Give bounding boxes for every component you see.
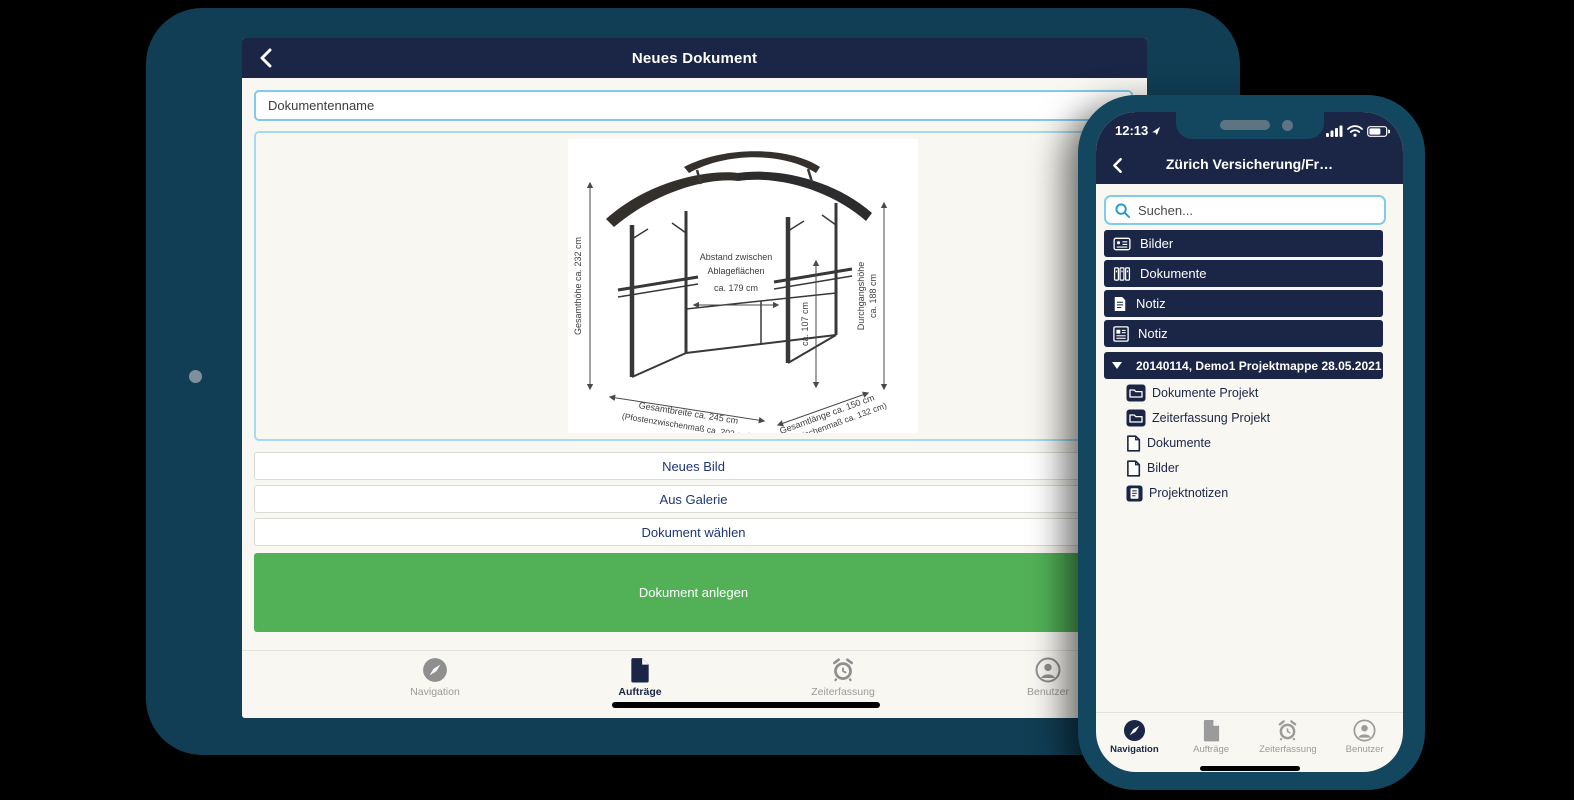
tree-item-dokumente[interactable]: Dokumente [1126,432,1211,454]
tree-item-dokumente-projekt[interactable]: Dokumente Projekt [1126,382,1258,404]
tab-auftraege[interactable]: Aufträge [1173,713,1250,772]
image-preview-panel[interactable]: Gesamthöhe ca. 232 cm Abstand zwischen A… [254,131,1133,441]
tab-navigation[interactable]: Navigation [1096,713,1173,772]
project-folder-row[interactable]: 20140114, Demo1 Projektmappe 28.05.2021 [1104,352,1383,379]
notepad-icon [1113,326,1129,342]
new-image-button[interactable]: Neues Bild [254,452,1133,480]
phone-tabbar: Navigation Aufträge Zeiterfassung Benutz… [1096,712,1403,772]
file-light-icon [1126,460,1141,477]
binders-icon [1113,267,1131,281]
create-document-button[interactable]: Dokument anlegen [254,553,1133,632]
chevron-left-icon [259,48,273,68]
images-button[interactable]: Bilder [1104,230,1383,257]
tablet-screen: Neues Dokument [242,38,1147,718]
note-dark-icon [1126,485,1143,502]
tree-item-projektnotizen[interactable]: Projektnotizen [1126,482,1228,504]
tab-benutzer[interactable]: Benutzer [1326,713,1403,772]
note-button[interactable]: Notiz [1104,290,1383,317]
notch [1176,112,1324,139]
tablet-tabbar: Navigation Aufträge Zeiterfassung Benutz… [242,650,1147,718]
file-light-icon [1126,435,1141,452]
note-button-2[interactable]: Notiz [1104,320,1383,347]
tab-zeiterfassung[interactable]: Zeiterfassung [778,656,908,698]
phone-device: 12:13 Zürich Versicherung/Fr… Suchen... … [1078,95,1425,790]
svg-text:Abstand zwischen: Abstand zwischen [700,252,773,262]
tab-auftraege[interactable]: Aufträge [575,656,705,698]
document-name-input[interactable] [254,90,1133,121]
tablet-device: Neues Dokument [146,8,1240,755]
documents-button[interactable]: Dokumente [1104,260,1383,287]
tab-navigation[interactable]: Navigation [370,656,500,698]
caret-down-icon[interactable] [1112,362,1122,369]
page-title: Zürich Versicherung/Fr… [1096,156,1403,172]
wifi-icon [1347,125,1363,137]
svg-text:ca. 107 cm: ca. 107 cm [800,302,810,346]
svg-text:Ablageflächen: Ablageflächen [707,266,764,276]
user-icon [1326,718,1403,742]
location-icon [1151,126,1161,136]
signal-icon [1326,125,1343,137]
document-icon [1173,718,1250,742]
status-time: 12:13 [1115,123,1161,138]
alarm-icon [778,656,908,684]
search-icon [1115,203,1130,218]
home-indicator[interactable] [1200,766,1300,771]
technical-drawing: Gesamthöhe ca. 232 cm Abstand zwischen A… [568,139,918,433]
page-title: Neues Dokument [632,50,757,67]
phone-screen: 12:13 Zürich Versicherung/Fr… Suchen... … [1096,112,1403,772]
folder-dark-icon [1126,384,1146,402]
tree-item-zeiterfassung-projekt[interactable]: Zeiterfassung Projekt [1126,407,1270,429]
photo-card-icon [1113,237,1131,251]
compass-icon [1096,718,1173,742]
tablet-header: Neues Dokument [242,38,1147,78]
note-page-icon [1113,296,1127,312]
front-camera [1282,120,1293,131]
compass-icon [370,656,500,684]
tab-zeiterfassung[interactable]: Zeiterfassung [1250,713,1327,772]
home-indicator[interactable] [612,702,880,708]
battery-icon [1367,126,1390,137]
folder-dark-icon [1126,409,1146,427]
svg-text:Durchgangshöhe: Durchgangshöhe [856,262,866,331]
choose-document-button[interactable]: Dokument wählen [254,518,1133,546]
document-icon [575,656,705,684]
search-input[interactable]: Suchen... [1104,195,1386,225]
tree-item-bilder[interactable]: Bilder [1126,457,1179,479]
tablet-camera-dot [189,370,202,383]
back-button[interactable] [254,46,278,70]
svg-text:ca. 188 cm: ca. 188 cm [868,274,878,318]
svg-text:ca. 179 cm: ca. 179 cm [714,283,758,293]
from-gallery-button[interactable]: Aus Galerie [254,485,1133,513]
svg-text:Gesamthöhe ca. 232 cm: Gesamthöhe ca. 232 cm [573,237,583,335]
speaker [1220,120,1270,130]
alarm-icon [1250,718,1327,742]
